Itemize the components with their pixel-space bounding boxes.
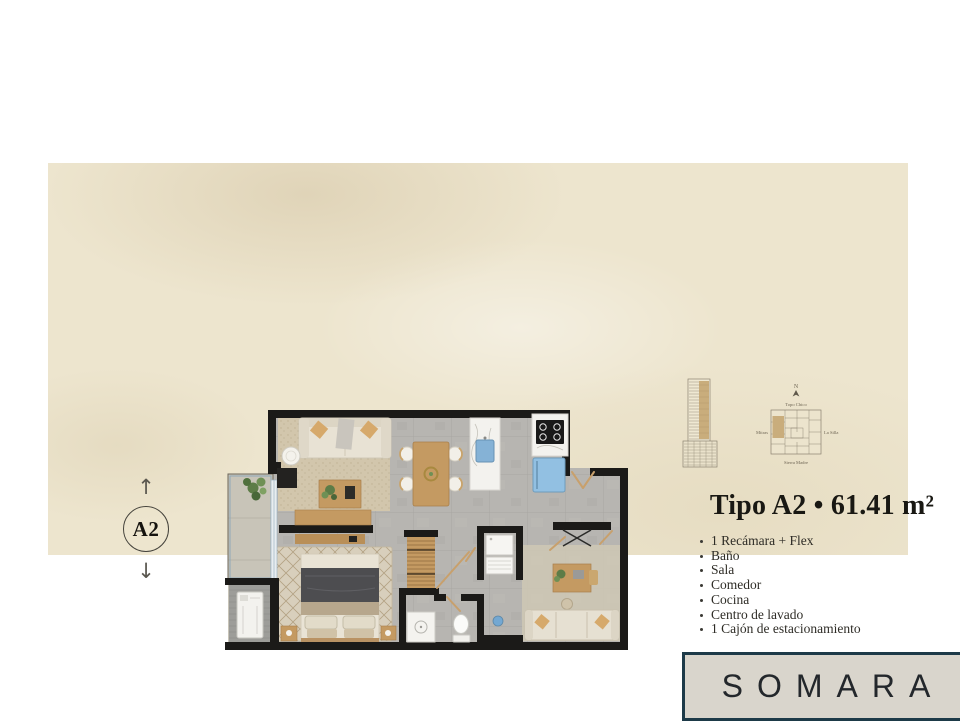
kitchen-counter [532,414,568,456]
black-cabinet [277,468,297,488]
map-label-left: Mitras [756,430,768,435]
bullet-dot [700,584,703,587]
pillow [305,616,337,629]
feature-item: Sala [700,563,861,578]
bullet-dot [700,555,703,558]
feature-item: 1 Recámara + Flex [700,534,861,549]
flex-sofa [525,610,619,640]
unit-title: Tipo A2 • 61.41 m² [686,490,958,522]
brand-name: SOMARA [722,668,945,705]
feature-item: Centro de lavado [700,608,861,623]
background-panel: ↑ A2 ↓ [48,163,908,555]
bed [301,554,379,642]
pillow [343,616,375,629]
location-key-plan: N Topo Chico Mitras La Silla Sierra Madr… [744,379,848,475]
hall-stool [493,616,503,626]
flex-desk [553,564,598,592]
balcony-slider-window [271,480,277,580]
brand-logo: SOMARA [682,652,960,721]
utility-room [229,584,273,644]
shower [407,612,435,642]
feature-item: Comedor [700,578,861,593]
map-label-right: La Silla [824,430,838,435]
feature-text: Baño [711,549,740,564]
coffee-table [319,480,361,508]
highlighted-unit [773,416,785,438]
feature-item: Cocina [700,593,861,608]
compass-icon [793,390,800,397]
throw-blanket [335,418,354,450]
floor-key [771,410,821,454]
feature-item: Baño [700,549,861,564]
floor-plan [223,398,643,656]
laundry-unit [486,535,513,555]
bullet-dot [700,599,703,602]
sofa [299,418,391,458]
feature-item: 1 Cajón de estacionamiento [700,622,861,637]
unit-marker: ↑ A2 ↓ [118,475,174,583]
highlighted-unit-stack [699,381,709,439]
kitchen-island [470,418,500,490]
sink [476,440,494,462]
feature-text: Comedor [711,578,761,593]
stove [536,420,564,444]
flex-stool [562,599,573,610]
unit-badge-label: A2 [133,517,160,542]
wardrobe [407,537,435,588]
toilet [453,615,470,643]
bullet-dot [700,540,703,543]
side-table [282,447,300,465]
bullet-dot [700,569,703,572]
arrow-up-icon: ↑ [118,475,174,499]
feature-text: 1 Cajón de estacionamiento [711,622,861,637]
unit-badge: A2 [123,506,169,552]
arrow-down-icon: ↓ [118,559,174,583]
map-label-bottom: Sierra Madre [784,460,808,465]
feature-text: Sala [711,563,734,578]
feature-text: 1 Recámara + Flex [711,534,813,549]
feature-text: Centro de lavado [711,608,803,623]
map-label-top: Topo Chico [785,402,807,407]
bullet-dot [700,628,703,631]
refrigerator [533,458,565,492]
north-label: N [794,384,799,390]
desk-chair [589,570,598,585]
building-elevation [680,377,722,471]
feature-list: 1 Recámara + Flex Baño Sala Comedor Coci… [700,534,861,637]
bullet-dot [700,614,703,617]
laundry-closet [486,535,513,574]
feature-text: Cocina [711,593,749,608]
